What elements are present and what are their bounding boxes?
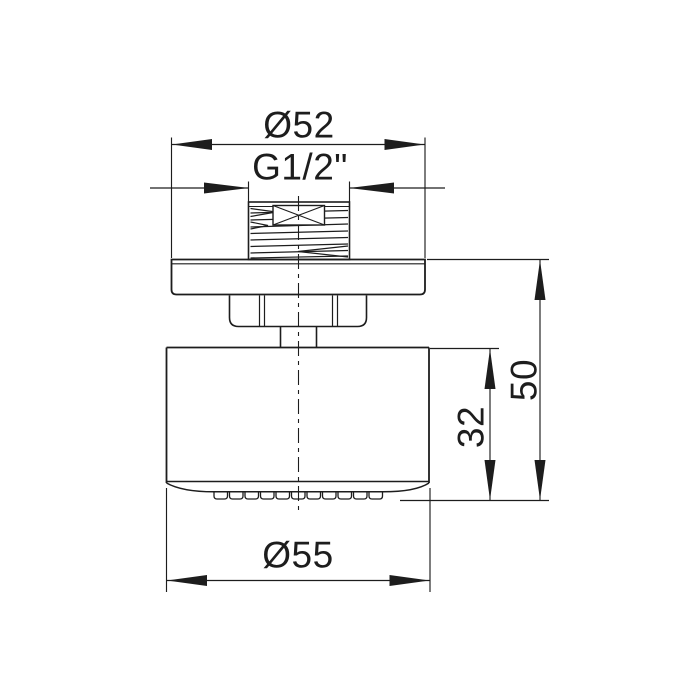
- arrow-right-icon: [390, 575, 430, 586]
- arrow-up-icon: [485, 349, 496, 389]
- arrow-down-icon: [485, 460, 496, 500]
- arrow-left-icon: [167, 575, 207, 586]
- arrow-up-icon: [535, 260, 546, 300]
- arrow-left-icon: [349, 183, 394, 194]
- arrow-right-icon: [385, 139, 425, 150]
- shower-head-drawing: [0, 0, 700, 700]
- technical-drawing-page: Ø52 G1/2" 50 32 Ø55: [0, 0, 700, 700]
- dim-label-overall-height: 50: [506, 359, 543, 401]
- arrow-left-icon: [172, 139, 212, 150]
- shower-body: [167, 348, 430, 492]
- arrow-right-icon: [204, 183, 249, 194]
- dim-label-flange-diameter: Ø52: [263, 107, 334, 144]
- arrow-down-icon: [535, 460, 546, 500]
- dim-label-body-height: 32: [453, 406, 490, 448]
- dim-label-head-diameter: Ø55: [262, 537, 333, 574]
- dim-label-thread-size: G1/2": [252, 149, 348, 186]
